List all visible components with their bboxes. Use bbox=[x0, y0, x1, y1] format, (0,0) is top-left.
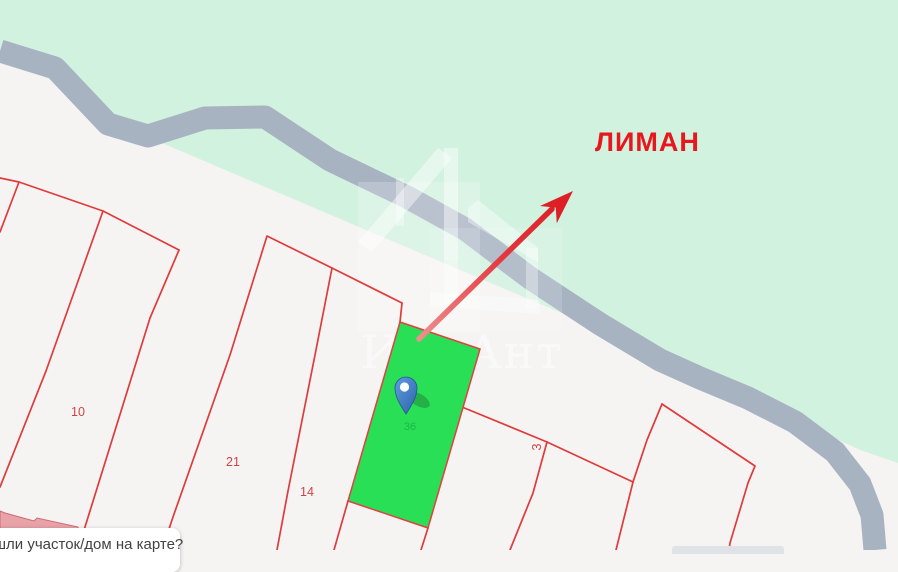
selected-parcel-number: 36 bbox=[404, 421, 416, 433]
map-tooltip-text: шли участок/дом на карте? bbox=[0, 536, 183, 553]
region-label: ЛИМАН bbox=[595, 127, 700, 157]
parcel-number-3: 3 bbox=[530, 443, 544, 450]
map-canvas[interactable]: ИриАнт 36 10 21 14 3 ЛИМАН bbox=[0, 0, 898, 550]
parcel-number-21: 21 bbox=[226, 455, 240, 469]
parcel-number-10: 10 bbox=[71, 405, 85, 419]
pin-hole bbox=[400, 382, 409, 391]
parcel-number-14: 14 bbox=[300, 485, 314, 499]
bottom-panel-edge bbox=[672, 546, 784, 554]
map-tooltip: шли участок/дом на карте? bbox=[0, 528, 180, 572]
